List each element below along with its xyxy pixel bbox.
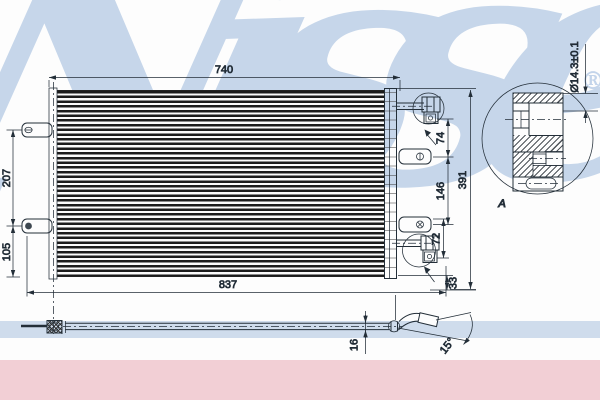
dim-105-label: 105 xyxy=(1,243,13,261)
detail-view-a: A xyxy=(482,83,593,210)
detail-a-label: A xyxy=(497,198,505,210)
bottom-port-screw-hole xyxy=(427,254,431,258)
detail-block-outline xyxy=(513,93,563,191)
dimension-33: 33 xyxy=(398,276,476,291)
dim-74-label: 74 xyxy=(435,132,447,144)
dim-16-label: 16 xyxy=(349,339,361,351)
dim-837-label: 837 xyxy=(219,279,237,291)
bracket-left-bottom-hole xyxy=(25,223,32,230)
technical-drawing-canvas: Nissens ® xyxy=(0,0,600,400)
right-brackets xyxy=(399,149,431,232)
right-header-tank xyxy=(385,89,397,279)
dim-15deg-label: 15° xyxy=(438,336,458,357)
dimension-146: 146 xyxy=(433,157,454,225)
dim-146-label: 146 xyxy=(435,182,447,200)
top-port-block xyxy=(422,97,440,112)
main-view xyxy=(49,82,397,334)
dimension-105: 105 xyxy=(1,226,20,277)
dimension-740: 740 xyxy=(49,64,400,91)
bracket-right-bottom xyxy=(399,217,431,232)
left-brackets xyxy=(22,123,52,233)
dimension-837: 837 xyxy=(27,236,446,297)
top-port-screw-hole xyxy=(428,116,432,120)
dim-33-label: 33 xyxy=(448,277,460,289)
dimension-16: 16 xyxy=(349,311,366,354)
pipe-side-view xyxy=(21,295,439,334)
dim-207-label: 207 xyxy=(1,169,13,187)
dim-72-label: 72 xyxy=(431,233,443,245)
pipe-left-fitting-nut xyxy=(49,322,58,331)
pipe-end-connector xyxy=(418,313,439,327)
dim-740-label: 740 xyxy=(215,64,233,76)
dimension-207: 207 xyxy=(1,130,22,226)
dimension-74: 74 xyxy=(435,119,454,157)
bracket-right-top xyxy=(399,149,431,164)
top-port-screw-boss xyxy=(426,114,436,122)
dimension-bore-diameter: Ø14.3±0.1 xyxy=(563,41,598,123)
dim-391-label: 391 xyxy=(457,171,469,189)
left-side-plate xyxy=(49,88,57,279)
bottom-port-view-arrow-tail xyxy=(427,272,435,282)
dim-bore-diameter-label: Ø14.3±0.1 xyxy=(569,41,581,92)
drawing-linework: 740 837 391 74 146 xyxy=(0,0,600,400)
pipe-bend-upper-curve xyxy=(399,313,421,321)
